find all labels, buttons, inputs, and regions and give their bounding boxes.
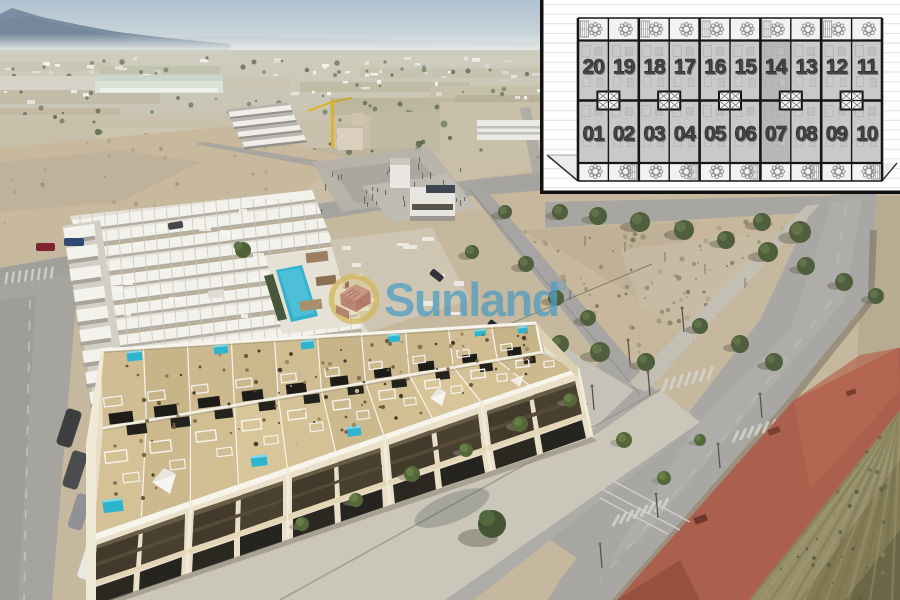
svg-text:01: 01 [583, 123, 606, 146]
svg-text:16: 16 [704, 56, 726, 79]
svg-text:19: 19 [613, 56, 635, 79]
svg-text:07: 07 [765, 123, 787, 146]
svg-text:09: 09 [826, 123, 848, 146]
svg-text:20: 20 [583, 56, 605, 79]
svg-text:10: 10 [856, 123, 878, 146]
svg-text:Sunland: Sunland [384, 273, 559, 326]
svg-text:R: R [559, 285, 563, 291]
svg-text:04: 04 [674, 123, 697, 146]
svg-text:18: 18 [643, 56, 666, 79]
svg-text:05: 05 [704, 123, 727, 146]
svg-text:14: 14 [765, 56, 788, 79]
svg-text:02: 02 [613, 123, 635, 146]
svg-text:08: 08 [795, 123, 818, 146]
svg-text:12: 12 [826, 56, 848, 79]
svg-text:15: 15 [735, 56, 758, 79]
svg-text:06: 06 [735, 123, 757, 146]
svg-text:13: 13 [795, 56, 817, 79]
svg-text:11: 11 [857, 56, 879, 79]
svg-text:17: 17 [674, 56, 696, 79]
svg-text:03: 03 [643, 123, 665, 146]
